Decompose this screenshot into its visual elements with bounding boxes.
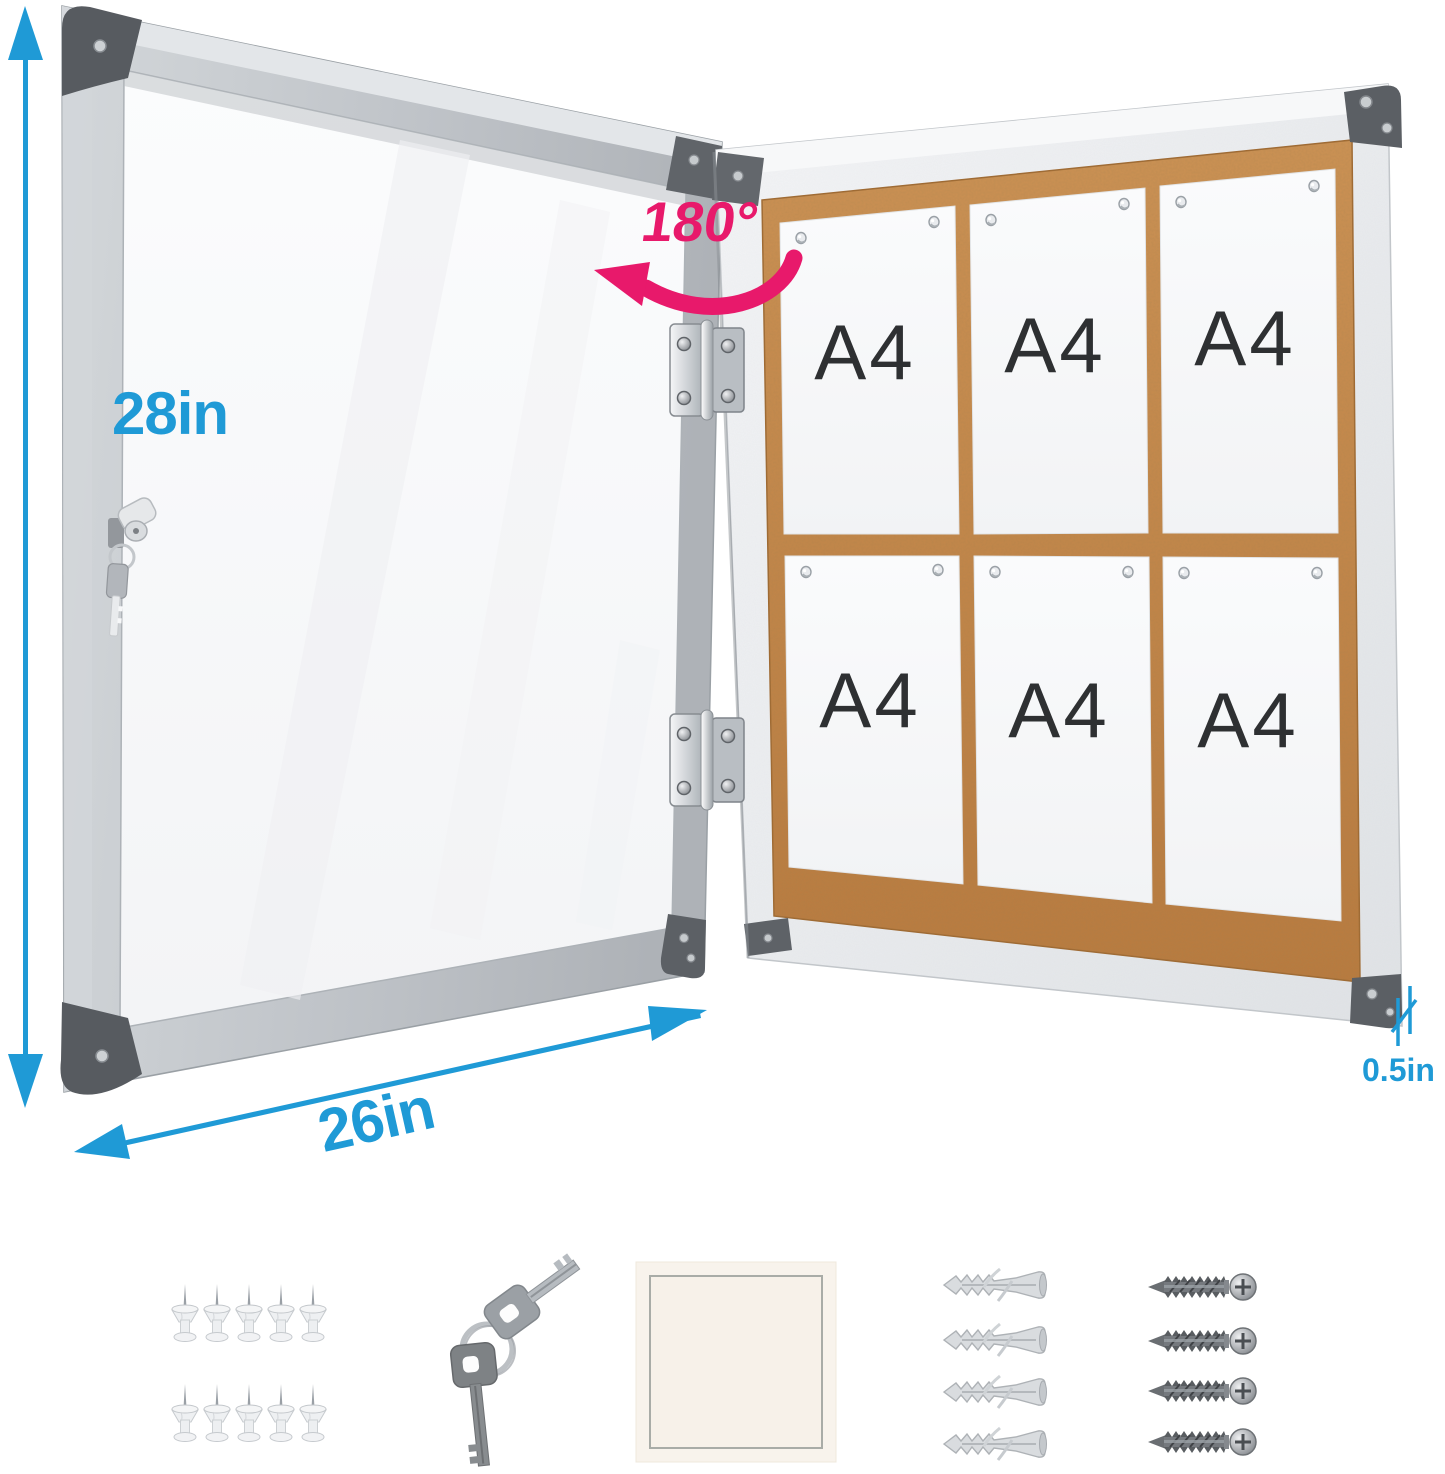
a4-paper-label: A4 <box>765 313 965 391</box>
paper-pin-icon <box>986 215 996 226</box>
a4-paper-label: A4 <box>959 671 1159 749</box>
hinge-bottom <box>670 710 744 810</box>
glass-door <box>60 6 722 1095</box>
height-dimension-arrow <box>8 6 43 1108</box>
wall-anchor-icon <box>944 1376 1047 1408</box>
screw-icon <box>1148 1429 1256 1455</box>
paper-pin-icon <box>1309 181 1319 192</box>
paper-pin-icon <box>796 233 806 244</box>
screw-icon <box>1148 1274 1256 1300</box>
wall-anchors-set <box>944 1269 1047 1460</box>
hinge-top <box>670 320 744 420</box>
paper-pin-icon <box>1123 567 1133 578</box>
wall-anchor-icon <box>944 1324 1047 1356</box>
screws-set <box>1148 1274 1256 1455</box>
screw-icon <box>1148 1378 1256 1404</box>
push-pin-icon <box>268 1284 294 1342</box>
board-corner-cap <box>1350 974 1402 1028</box>
product-showcase: 28in 26in 0.5in 180° A4 A4 A4 A4 A4 A4 <box>0 0 1445 1474</box>
a4-paper-label: A4 <box>770 661 970 739</box>
wall-anchor-icon <box>944 1269 1047 1301</box>
push-pin-icon <box>172 1384 198 1442</box>
paper-pin-icon <box>929 217 939 228</box>
a4-paper-label: A4 <box>1145 299 1345 377</box>
paper-pin-icon <box>1176 197 1186 208</box>
push-pin-icon <box>300 1284 326 1342</box>
adhesive-pad-icon <box>636 1262 836 1462</box>
door-swing-angle-label: 180° <box>638 194 762 250</box>
push-pins-set <box>172 1284 326 1442</box>
keys-set <box>450 1249 589 1468</box>
height-dimension-label: 28in <box>112 384 228 444</box>
key-icon <box>450 1342 507 1468</box>
push-pin-icon <box>204 1284 230 1342</box>
paper-pin-icon <box>990 567 1000 578</box>
push-pin-icon <box>268 1384 294 1442</box>
a4-paper-label: A4 <box>1148 681 1348 759</box>
paper-pin-icon <box>933 565 943 576</box>
push-pin-icon <box>300 1384 326 1442</box>
paper-pin-icon <box>801 567 811 578</box>
depth-dimension-label: 0.5in <box>1362 1054 1435 1086</box>
screw-icon <box>1148 1328 1256 1354</box>
a4-paper-label: A4 <box>955 306 1155 384</box>
push-pin-icon <box>172 1284 198 1342</box>
board-corner-cap <box>1344 86 1402 148</box>
push-pin-icon <box>204 1384 230 1442</box>
door-corner-cap <box>661 914 706 978</box>
cork-board <box>712 84 1402 1028</box>
push-pin-icon <box>236 1284 262 1342</box>
paper-pin-icon <box>1179 568 1189 579</box>
wall-anchor-icon <box>944 1428 1047 1460</box>
paper-pin-icon <box>1312 568 1322 579</box>
paper-pin-icon <box>1119 199 1129 210</box>
push-pin-icon <box>236 1384 262 1442</box>
key-icon <box>481 1249 589 1342</box>
